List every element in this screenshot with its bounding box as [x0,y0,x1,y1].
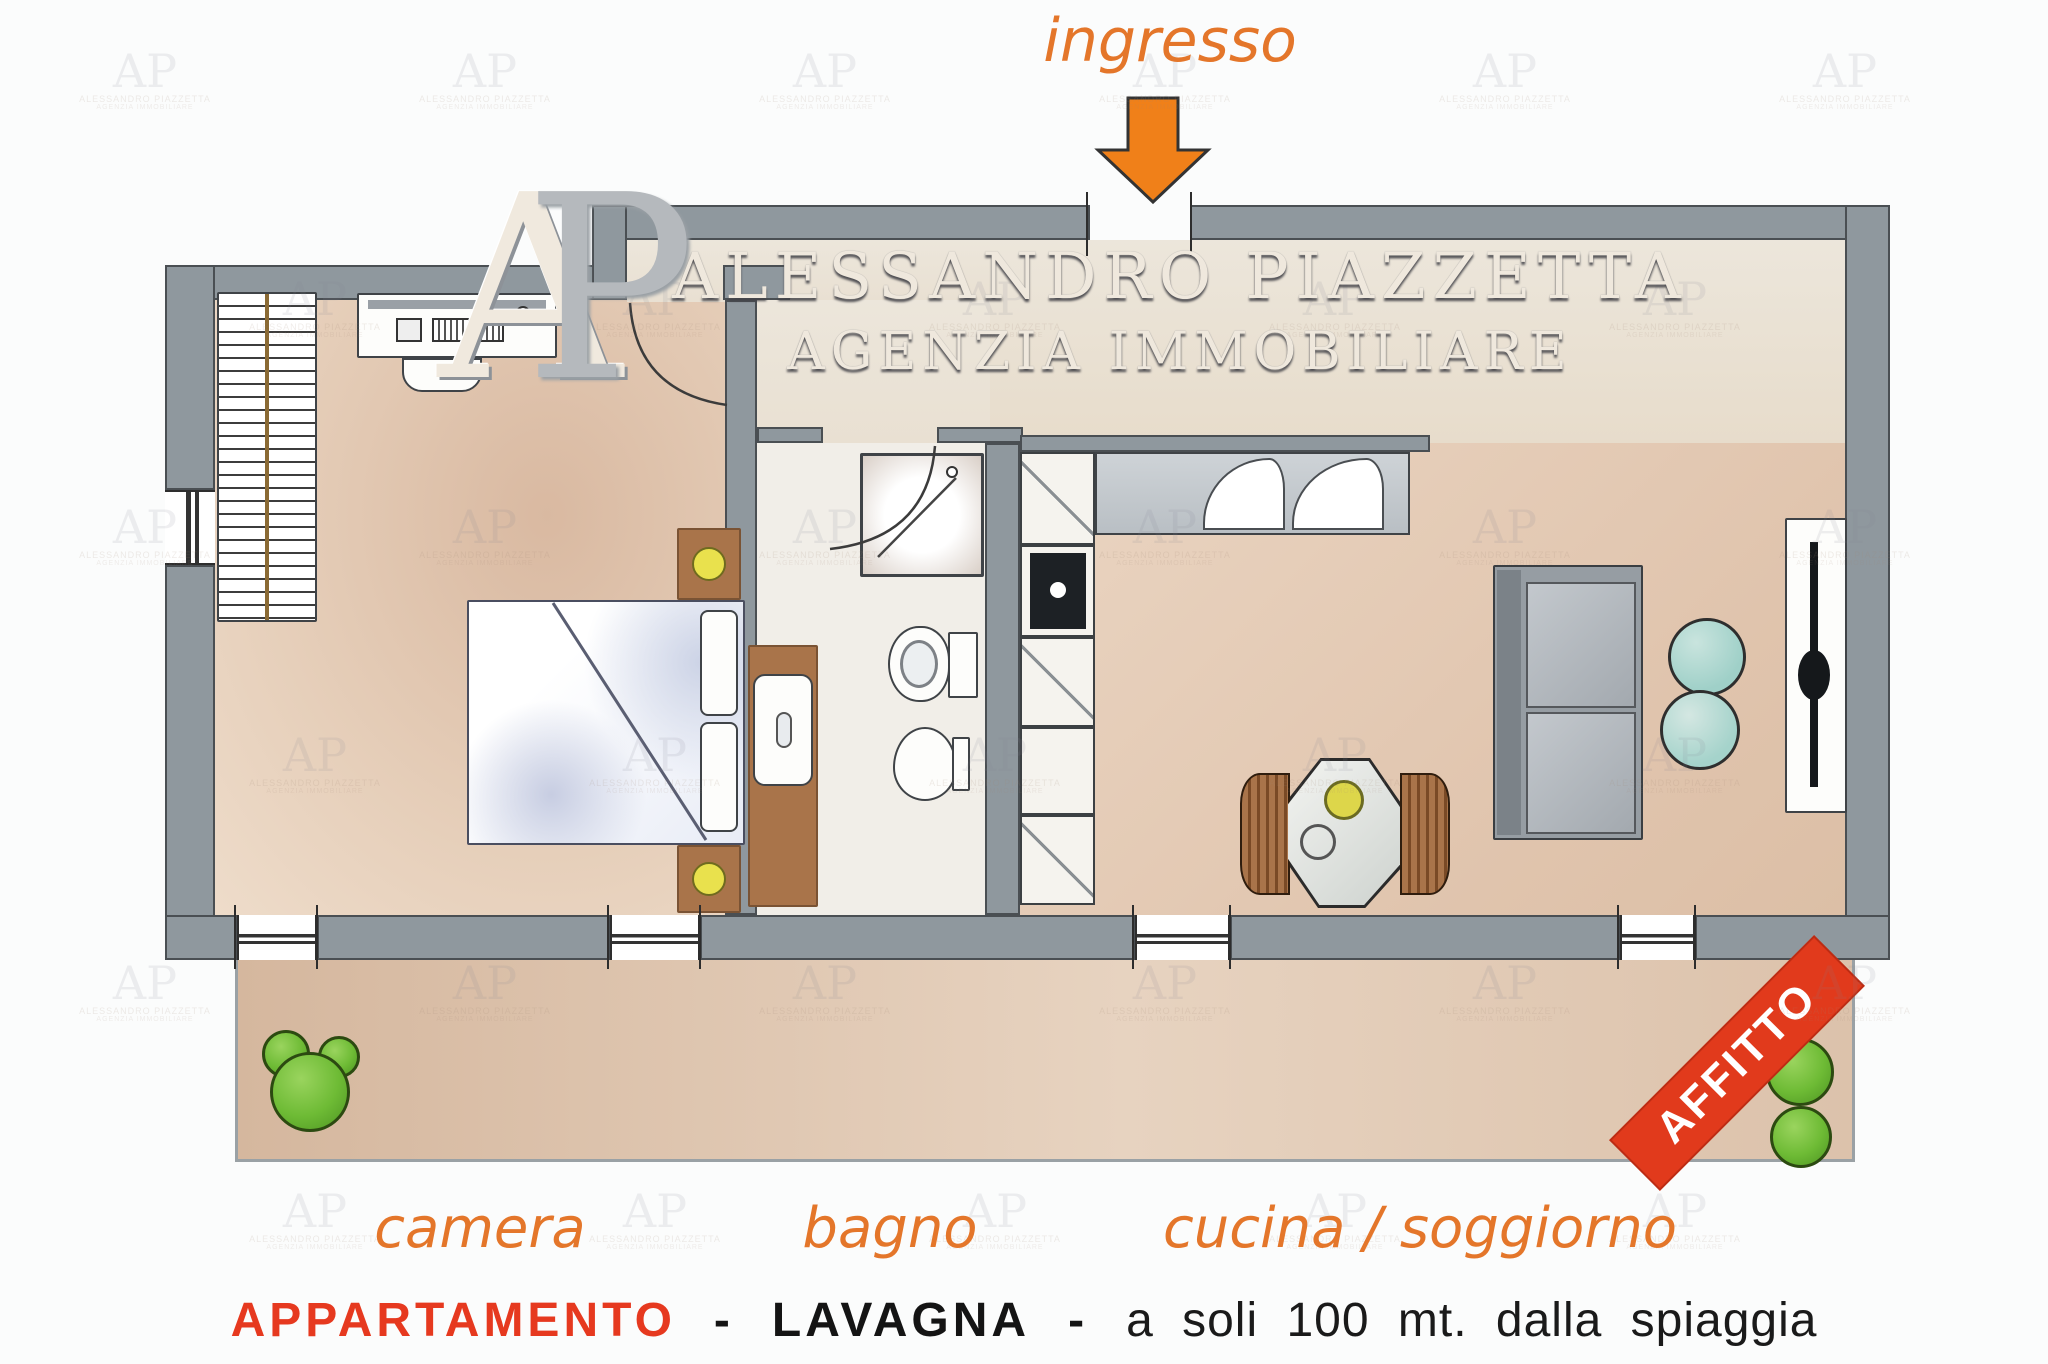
caption-separator: - [714,1293,734,1348]
caption-property-type: APPARTAMENTO [231,1293,676,1348]
table-bowl [1324,780,1364,820]
plan-sketch-overlay [0,0,2048,1364]
label-kitchen-living: cucina / soggiorno [1160,1196,1680,1261]
bathroom-door-arc [830,446,935,549]
agency-subtitle: AGENZIA IMMOBILIARE [640,322,1720,382]
agency-name: ALESSANDRO PIAZZETTA [540,240,1820,314]
label-bedroom: camera [360,1196,600,1261]
shower-diagonal [878,478,956,557]
cooktop-burner [1050,582,1066,598]
entrance-arrow-icon [1098,98,1208,202]
tv-base [1798,650,1830,700]
caption-location: LAVAGNA [772,1293,1030,1348]
caption: APPARTAMENTO - LAVAGNA - a soli 100 mt. … [0,1293,2048,1348]
caption-separator: - [1068,1293,1088,1348]
label-bathroom: bagno [790,1196,990,1261]
round-armchair [1660,690,1740,770]
label-entrance: ingresso [1030,6,1310,76]
caption-tagline: a soli 100 mt. dalla spiaggia [1126,1293,1817,1348]
bed-blanket-fold [553,603,706,840]
table-plate [1300,824,1336,860]
floor-plan-page: AFFITTO AP ALESSANDRO PIAZZETTA AGENZIA … [0,0,2048,1364]
